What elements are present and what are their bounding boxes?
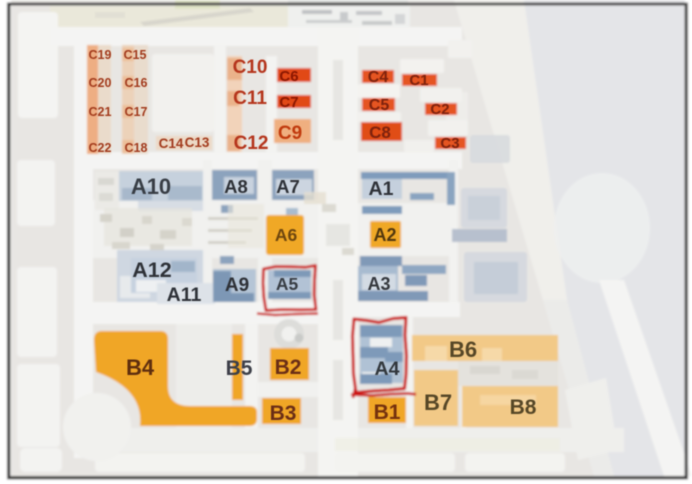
svg-text:A5: A5: [276, 274, 299, 294]
svg-text:C7: C7: [279, 94, 298, 111]
svg-text:C2: C2: [430, 101, 449, 118]
svg-text:C12: C12: [234, 133, 269, 154]
svg-text:A8: A8: [224, 176, 248, 197]
svg-text:C18: C18: [125, 141, 148, 155]
svg-text:A9: A9: [225, 275, 249, 296]
svg-text:A2: A2: [373, 225, 396, 245]
svg-text:A12: A12: [132, 258, 171, 282]
svg-text:C15: C15: [124, 48, 147, 62]
svg-text:A3: A3: [367, 274, 390, 294]
svg-text:C5: C5: [369, 97, 390, 114]
svg-text:C6: C6: [279, 68, 298, 85]
svg-text:C20: C20: [89, 76, 112, 90]
svg-text:C17: C17: [125, 105, 148, 119]
svg-text:A1: A1: [369, 178, 394, 200]
svg-text:B8: B8: [510, 396, 537, 419]
svg-text:B6: B6: [449, 337, 477, 362]
svg-text:B5: B5: [226, 357, 253, 380]
svg-text:B4: B4: [126, 355, 155, 380]
svg-text:C4: C4: [368, 69, 389, 86]
svg-text:A11: A11: [167, 284, 202, 306]
svg-text:A10: A10: [131, 174, 171, 199]
svg-text:C13: C13: [185, 135, 210, 150]
svg-text:B2: B2: [275, 356, 302, 379]
svg-text:B3: B3: [270, 402, 297, 425]
svg-text:C22: C22: [89, 141, 112, 155]
svg-text:A7: A7: [276, 176, 300, 197]
svg-text:C10: C10: [233, 57, 268, 78]
svg-text:C11: C11: [233, 88, 267, 109]
svg-text:C9: C9: [278, 123, 302, 144]
svg-text:A6: A6: [275, 225, 298, 245]
svg-text:C8: C8: [369, 123, 391, 142]
svg-text:B1: B1: [374, 401, 401, 424]
svg-text:C1: C1: [409, 72, 428, 89]
svg-text:C19: C19: [89, 48, 112, 62]
svg-text:C21: C21: [89, 105, 112, 119]
svg-text:A4: A4: [375, 358, 400, 380]
svg-text:C14: C14: [159, 136, 184, 151]
svg-text:B7: B7: [424, 390, 452, 415]
svg-text:C3: C3: [440, 135, 459, 152]
svg-text:C16: C16: [125, 76, 148, 90]
